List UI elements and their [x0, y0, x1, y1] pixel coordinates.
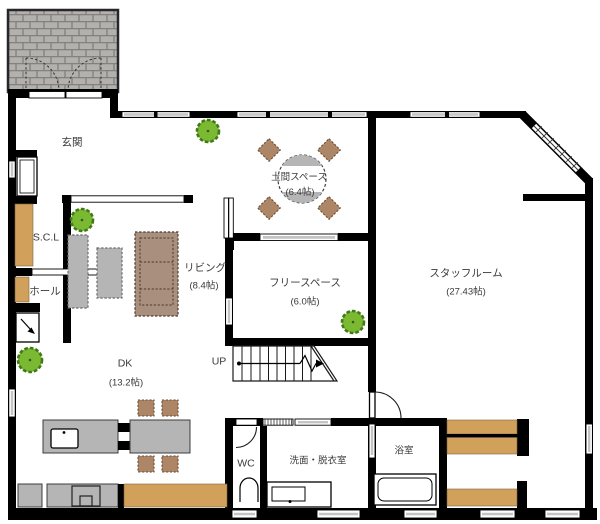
scl-closet: [15, 204, 33, 266]
room-label-wc: WC: [237, 458, 255, 470]
room-label-bath: 浴室: [394, 445, 413, 457]
dining-table: [130, 420, 190, 453]
bathtub: [374, 474, 436, 505]
room-label-doma: 土間スペース: [271, 171, 327, 183]
sofa: [135, 232, 178, 316]
floor-plan-drawing: 玄関 土間スペース (6.4帖) リビング (8.4帖) フリースペース (6.…: [0, 0, 600, 524]
room-label-washroom: 洗面・脱衣室: [289, 455, 346, 467]
entrance-bench: [17, 157, 37, 196]
room-label-genkan: 玄関: [62, 136, 83, 149]
room-label-staff-room: スタッフルーム: [429, 268, 502, 280]
coffee-table: [97, 248, 122, 298]
room-size-dk: (13.2帖): [109, 377, 143, 389]
stairs: [233, 346, 337, 381]
hall-door: [16, 313, 39, 342]
room-label-free-space: フリースペース: [269, 277, 341, 289]
kitchen-island: [43, 420, 130, 453]
room-label-living: リビング: [184, 261, 226, 274]
floor-plan: 玄関 土間スペース (6.4帖) リビング (8.4帖) フリースペース (6.…: [0, 0, 600, 524]
storage-shelves: [447, 420, 517, 506]
room-size-free-space: (6.0帖): [290, 296, 319, 308]
tv-board: [68, 235, 88, 308]
stairs-up-label: UP: [212, 356, 227, 368]
toilet: [240, 478, 258, 502]
plant-icon: [197, 120, 219, 142]
vanity: [267, 482, 331, 507]
room-label-hall: ホール: [29, 286, 61, 298]
plant-icon: [18, 348, 42, 372]
kitchen-counter: [18, 484, 227, 508]
plant-icon: [71, 209, 93, 231]
room-label-scl: S.C.L: [33, 232, 59, 244]
room-size-staff-room: (27.43帖): [446, 286, 486, 298]
plant-icon: [342, 311, 364, 333]
hall-closet: [15, 277, 29, 302]
room-size-doma: (6.4帖): [285, 186, 314, 198]
room-label-dk: DK: [118, 358, 133, 370]
entrance-porch: [8, 10, 118, 92]
room-size-living: (8.4帖): [189, 280, 218, 292]
